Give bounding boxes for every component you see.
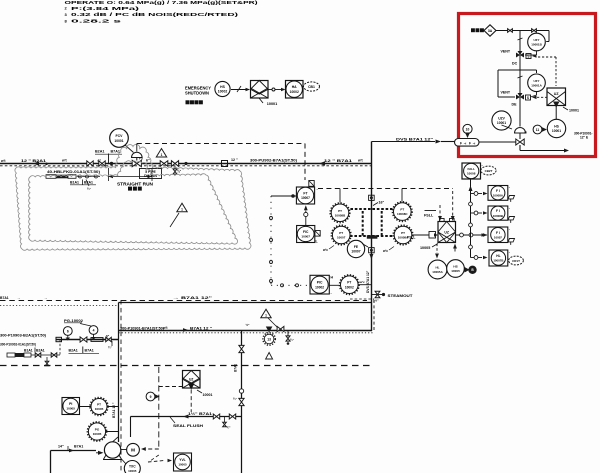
- svg-text:300-P10902-01A1(ST.50): 300-P10902-01A1(ST.50): [0, 343, 37, 347]
- svg-text:w'c: w'c: [359, 280, 365, 284]
- svg-text:S: S: [527, 96, 529, 100]
- svg-text:12 " B2A1: 12 " B2A1: [21, 158, 47, 163]
- svg-text:⊣: ⊣: [473, 141, 476, 145]
- svg-text:10001A: 10001A: [531, 83, 542, 87]
- svg-text:VENT: VENT: [501, 49, 511, 53]
- svg-text:SEAL FLUSH: SEAL FLUSH: [173, 423, 203, 428]
- svg-text:B7A1: B7A1: [74, 445, 83, 449]
- svg-text:PIC: PIC: [317, 281, 323, 285]
- svg-text:14": 14": [58, 445, 64, 449]
- svg-text:½": ½": [246, 323, 251, 327]
- svg-text:10005: 10005: [66, 407, 75, 411]
- svg-text:10001B: 10001B: [531, 43, 542, 47]
- svg-text:10007: 10007: [337, 236, 346, 240]
- svg-text:CB1: CB1: [308, 85, 315, 89]
- svg-text:B2A1: B2A1: [36, 348, 45, 352]
- svg-text:UZV: UZV: [498, 117, 505, 121]
- svg-text:FI: FI: [525, 131, 528, 135]
- svg-text:PT: PT: [347, 281, 351, 285]
- svg-text:10001: 10001: [569, 109, 579, 113]
- svg-text:w'c: w'c: [382, 249, 388, 253]
- svg-text:10007: 10007: [301, 234, 310, 238]
- svg-text:→: →: [44, 296, 47, 300]
- svg-text:¾": ¾": [233, 397, 238, 401]
- svg-text:16": 16": [379, 201, 385, 205]
- svg-text:F I: F I: [496, 231, 500, 235]
- svg-text:10002: 10002: [315, 285, 324, 289]
- svg-text:1½" B7A1: 1½" B7A1: [188, 412, 212, 416]
- svg-text:M: M: [131, 448, 135, 453]
- svg-text:¾": ¾": [227, 426, 232, 430]
- svg-text:10002: 10002: [218, 90, 228, 94]
- svg-text:FIC: FIC: [303, 230, 309, 234]
- svg-text:10007: 10007: [494, 235, 502, 239]
- svg-text:F I: F I: [496, 209, 500, 213]
- svg-text:B1A1: B1A1: [24, 348, 33, 352]
- svg-text:¾": ¾": [87, 187, 92, 191]
- svg-text:F: F: [460, 141, 462, 145]
- svg-text:UZY: UZY: [534, 79, 540, 83]
- svg-text:4: 4: [93, 329, 95, 333]
- svg-text:FCV: FCV: [116, 134, 124, 138]
- svg-text:FSLL: FSLL: [424, 214, 434, 218]
- svg-text:10007: 10007: [351, 250, 360, 254]
- svg-text:w't: w't: [61, 159, 67, 163]
- svg-text:UZ: UZ: [444, 231, 449, 235]
- svg-text:UZ: UZ: [189, 378, 193, 382]
- svg-text:YVL: YVL: [179, 458, 185, 462]
- svg-text:→ B7A1 12": → B7A1 12": [172, 295, 212, 300]
- svg-text:300-P10901-B7A1(ST.50): 300-P10901-B7A1(ST.50): [120, 326, 165, 330]
- svg-text:HS: HS: [220, 85, 225, 89]
- svg-text:w'c: w'c: [322, 248, 328, 252]
- svg-text:-: -: [509, 206, 510, 210]
- svg-text:10005A: 10005A: [432, 270, 443, 274]
- svg-text:S: S: [527, 55, 529, 59]
- svg-text:-: -: [509, 186, 510, 190]
- svg-text:B2A1: B2A1: [69, 349, 78, 353]
- svg-text:PSLL: PSLL: [407, 236, 415, 240]
- svg-text:300-P10903-B2A1(ST.50): 300-P10903-B2A1(ST.50): [0, 334, 47, 338]
- svg-text:10008C: 10008C: [397, 212, 408, 216]
- svg-text:P:(3.84 MPa): P:(3.84 MPa): [71, 6, 140, 11]
- svg-text:PT: PT: [339, 231, 343, 235]
- svg-text:0.28.2 s: 0.28.2 s: [71, 18, 123, 23]
- svg-text:OPERATE O: 0.64 MPa(g) / 7.36: OPERATE O: 0.64 MPa(g) / 7.36 MPa(g)(SET…: [65, 0, 259, 5]
- svg-text:B7A1 12 ": B7A1 12 ": [112, 402, 116, 418]
- svg-text:HA: HA: [292, 85, 297, 89]
- svg-text:w't: w't: [162, 326, 168, 330]
- svg-text:10008B: 10008B: [335, 213, 346, 217]
- svg-text:9: 9: [150, 395, 152, 399]
- svg-text:PT: PT: [400, 208, 404, 212]
- svg-text:PT: PT: [97, 403, 101, 407]
- svg-text:TXC: TXC: [129, 465, 136, 469]
- svg-text:B7A1: B7A1: [85, 349, 94, 353]
- svg-text:B7A1 12 ": B7A1 12 ": [190, 325, 212, 330]
- svg-text:CR1T: CR1T: [512, 259, 520, 263]
- svg-text:300-PU902-B7A1(ST.50): 300-PU902-B7A1(ST.50): [250, 159, 298, 163]
- svg-text:10001: 10001: [497, 121, 506, 125]
- svg-text:B7A1: B7A1: [111, 149, 120, 153]
- svg-text:w't: w't: [0, 159, 6, 163]
- svg-text:40-HBLFKD-01A1(ST.50): 40-HBLFKD-01A1(ST.50): [47, 170, 101, 174]
- svg-text:UZY: UZY: [534, 38, 540, 42]
- svg-text:11: 11: [536, 128, 540, 132]
- svg-text:PI: PI: [69, 402, 72, 406]
- svg-text:DE: DE: [512, 103, 518, 107]
- svg-text:FALL: FALL: [467, 167, 475, 171]
- svg-text:⊣: ⊣: [464, 141, 467, 145]
- svg-text:DVS B7A1 12": DVS B7A1 12": [396, 136, 433, 141]
- svg-text:¾": ¾": [290, 338, 295, 342]
- svg-text:PG: PG: [95, 428, 100, 432]
- svg-text:10005: 10005: [178, 463, 187, 467]
- svg-text:10007: 10007: [301, 196, 310, 200]
- svg-text:6": 6": [146, 159, 150, 163]
- svg-text:¾": ¾": [108, 346, 113, 350]
- svg-text:0.32 dB / PC dB NOIS(REDC/RTE: 0.32 dB / PC dB NOIS(REDC/RTED): [71, 12, 239, 17]
- svg-text:→: →: [17, 296, 20, 300]
- svg-text:PT: PT: [401, 231, 405, 235]
- svg-text:10007B: 10007B: [493, 259, 503, 263]
- svg-text:10: 10: [466, 128, 470, 132]
- svg-text:13: 13: [267, 338, 271, 342]
- svg-text:STEAMOUT: STEAMOUT: [388, 293, 414, 298]
- svg-text:3A: 3A: [488, 29, 493, 33]
- svg-text:1: 1: [161, 153, 163, 157]
- svg-text:HS: HS: [554, 125, 559, 129]
- svg-text:UZ: UZ: [554, 92, 560, 96]
- svg-text:B1A1: B1A1: [70, 181, 79, 185]
- svg-text:10008B: 10008B: [493, 214, 503, 218]
- svg-text:w't: w't: [357, 159, 363, 163]
- svg-text:12 " B7A1: 12 " B7A1: [324, 158, 353, 163]
- svg-text:10005: 10005: [128, 469, 137, 473]
- svg-text:10008A: 10008A: [493, 194, 504, 198]
- svg-text:12 ": 12 ": [231, 158, 238, 162]
- svg-text:10002: 10002: [345, 285, 354, 289]
- svg-text:PG-10002: PG-10002: [64, 319, 83, 323]
- svg-text:10005: 10005: [451, 269, 460, 273]
- svg-text:F: F: [469, 141, 471, 145]
- svg-text:-: -: [509, 250, 510, 254]
- svg-text:6: 6: [67, 330, 69, 334]
- svg-text:HL: HL: [496, 254, 500, 258]
- svg-text:10005: 10005: [93, 432, 102, 436]
- svg-text:10002: 10002: [290, 90, 299, 94]
- svg-text:10001: 10001: [552, 129, 561, 133]
- svg-text:10005: 10005: [95, 407, 104, 411]
- svg-text:STRAIGHT RUN: STRAIGHT RUN: [117, 181, 153, 186]
- svg-text:HL: HL: [436, 266, 440, 270]
- svg-text:10005: 10005: [420, 246, 430, 250]
- svg-text:DVS B7A1 12": DVS B7A1 12": [366, 270, 370, 293]
- svg-text:SHUTDOWN: SHUTDOWN: [185, 91, 209, 96]
- svg-text:B7A1: B7A1: [0, 296, 9, 300]
- svg-text:F I: F I: [496, 189, 500, 193]
- svg-text:HS: HS: [453, 265, 457, 269]
- svg-text:10001: 10001: [203, 393, 213, 397]
- svg-text:VENT: VENT: [501, 90, 511, 94]
- svg-text:-: -: [509, 227, 510, 231]
- svg-text:12" E: 12" E: [580, 136, 588, 140]
- svg-text:10001: 10001: [114, 139, 123, 143]
- svg-text:10008: 10008: [467, 171, 476, 175]
- svg-text:CB2T: CB2T: [485, 169, 493, 173]
- svg-text:10001: 10001: [267, 102, 278, 106]
- svg-text:¾": ¾": [177, 170, 182, 174]
- svg-text:B7A1: B7A1: [234, 364, 238, 372]
- svg-text:1: 1: [181, 208, 183, 212]
- svg-text:DC: DC: [512, 62, 518, 66]
- svg-text:B2A1: B2A1: [95, 149, 104, 153]
- svg-text:PT: PT: [338, 209, 342, 213]
- svg-text:-: -: [482, 163, 483, 167]
- svg-text:1½": 1½": [373, 299, 379, 303]
- svg-text:1: 1: [265, 314, 267, 318]
